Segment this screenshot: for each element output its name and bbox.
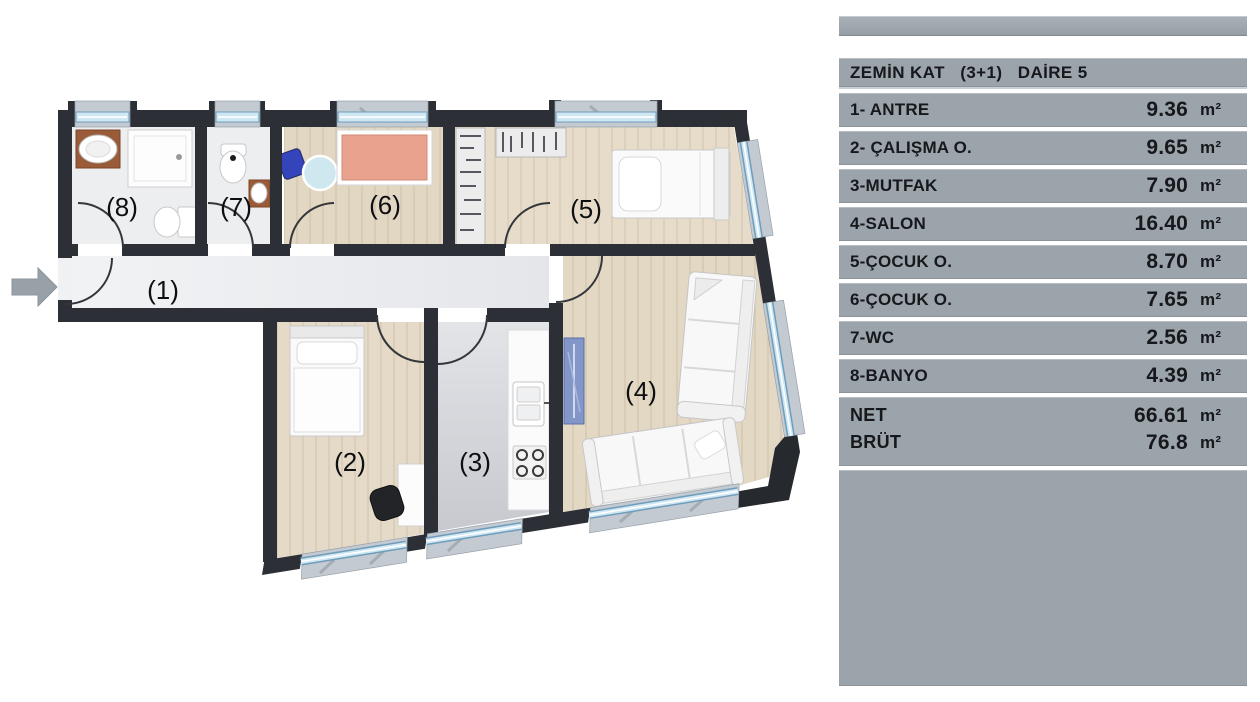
- table-totals: NET 66.61 m² BRÜT 76.8 m²: [839, 397, 1247, 466]
- row-value: 9.65: [1146, 136, 1188, 160]
- room-label-8: (8): [106, 192, 138, 222]
- room-label-4: (4): [625, 376, 657, 406]
- table-row-banyo: 8-BANYO 4.39 m²: [839, 359, 1247, 393]
- row-value: 2.56: [1146, 326, 1188, 350]
- row-unit: m²: [1200, 138, 1230, 158]
- sofa-vertical: [677, 271, 757, 422]
- row-value: 7.65: [1146, 288, 1188, 312]
- row-value: 16.40: [1134, 212, 1188, 236]
- total-value: 76.8: [1146, 431, 1188, 455]
- row-unit: m²: [1200, 252, 1230, 272]
- row-label: 4-SALON: [850, 214, 926, 234]
- row-unit: m²: [1200, 100, 1230, 120]
- bed2-headboard: [290, 326, 364, 338]
- row-label: 5-ÇOCUK O.: [850, 252, 952, 272]
- round-table: [303, 156, 337, 190]
- row-label: 8-BANYO: [850, 366, 928, 386]
- table-row-salon: 4-SALON 16.40 m²: [839, 207, 1247, 241]
- sink-bowl: [86, 141, 110, 157]
- toilet-flush: [230, 155, 236, 161]
- row-label: 1- ANTRE: [850, 100, 929, 120]
- total-net: NET 66.61 m²: [850, 402, 1230, 429]
- table-row-wc: 7-WC 2.56 m²: [839, 321, 1247, 355]
- row-unit: m²: [1200, 290, 1230, 310]
- sink-bowl-1: [517, 387, 540, 402]
- bed2-blanket: [294, 368, 360, 432]
- row-label: 2- ÇALIŞMA O.: [850, 138, 972, 158]
- table-row-calisma: 2- ÇALIŞMA O. 9.65 m²: [839, 131, 1247, 165]
- room-label-7: (7): [220, 192, 252, 222]
- toilet-tank-8: [178, 207, 196, 237]
- row-value: 8.70: [1146, 250, 1188, 274]
- row-label: 7-WC: [850, 328, 894, 348]
- row-unit: m²: [1200, 328, 1230, 348]
- total-label: NET: [850, 405, 887, 426]
- area-table: ZEMİN KAT (3+1) DAİRE 5 1- ANTRE 9.36 m²…: [839, 58, 1247, 686]
- total-label: BRÜT: [850, 432, 901, 453]
- room-label-2: (2): [334, 447, 366, 477]
- page: (1) (2) (3) (4) (5) (6) (7) (8) ZEMİN KA…: [0, 0, 1260, 702]
- table-row-antre: 1- ANTRE 9.36 m²: [839, 93, 1247, 127]
- shower-tray: [128, 130, 192, 187]
- wc-sink: [251, 183, 267, 203]
- bed2-pillow: [297, 342, 357, 364]
- panel-filler: [839, 470, 1247, 686]
- row-value: 7.90: [1146, 174, 1188, 198]
- table-row-cocuk5: 5-ÇOCUK O. 8.70 m²: [839, 245, 1247, 279]
- row-value: 9.36: [1146, 98, 1188, 122]
- floor-plan: (1) (2) (3) (4) (5) (6) (7) (8): [0, 0, 830, 702]
- entrance-threshold: [58, 258, 72, 302]
- row-unit: m²: [1200, 214, 1230, 234]
- bed6-mattress: [342, 135, 427, 180]
- table-title: ZEMİN KAT (3+1) DAİRE 5: [839, 58, 1247, 89]
- panel-top-bar: [839, 16, 1247, 36]
- row-label: 6-ÇOCUK O.: [850, 290, 952, 310]
- toilet-bowl-8: [154, 207, 180, 237]
- shower-drain: [176, 154, 182, 160]
- bed5-duvet: [619, 157, 661, 211]
- table-row-cocuk6: 6-ÇOCUK O. 7.65 m²: [839, 283, 1247, 317]
- sink-bowl-2: [517, 405, 540, 420]
- room-label-3: (3): [459, 447, 491, 477]
- table-row-mutfak: 3-MUTFAK 7.90 m²: [839, 169, 1247, 203]
- room-label-6: (6): [369, 190, 401, 220]
- entrance-arrow-icon: [12, 268, 57, 306]
- row-unit: m²: [1200, 366, 1230, 386]
- room-label-5: (5): [570, 194, 602, 224]
- room-label-1: (1): [147, 275, 179, 305]
- bed5-headboard: [714, 148, 729, 220]
- total-brut: BRÜT 76.8 m²: [850, 429, 1230, 456]
- total-unit: m²: [1200, 433, 1230, 453]
- total-unit: m²: [1200, 406, 1230, 426]
- row-value: 4.39: [1146, 364, 1188, 388]
- hall-floor: [58, 256, 549, 308]
- row-label: 3-MUTFAK: [850, 176, 938, 196]
- row-unit: m²: [1200, 176, 1230, 196]
- total-value: 66.61: [1134, 404, 1188, 428]
